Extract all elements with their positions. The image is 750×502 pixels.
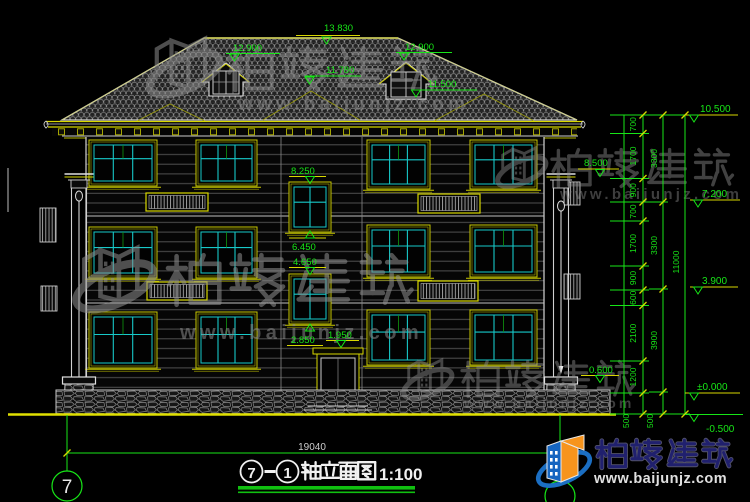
svg-text:1.950: 1.950	[328, 330, 352, 341]
svg-text:6.450: 6.450	[292, 242, 316, 253]
svg-text:0.600: 0.600	[589, 365, 613, 376]
svg-text:1:100: 1:100	[379, 465, 422, 484]
svg-text:3900: 3900	[649, 331, 659, 350]
svg-text:11.780: 11.780	[326, 65, 354, 76]
svg-text:13.830: 13.830	[324, 23, 353, 34]
svg-text:19040: 19040	[298, 442, 326, 453]
svg-text:500: 500	[621, 414, 631, 428]
svg-text:2.850: 2.850	[291, 335, 315, 346]
svg-text:www.baijunjz.com: www.baijunjz.com	[237, 94, 469, 115]
svg-text:7: 7	[247, 465, 255, 482]
svg-text:www.baijunjz.com: www.baijunjz.com	[593, 471, 727, 487]
svg-text:1700: 1700	[628, 234, 638, 253]
svg-text:11000: 11000	[671, 250, 681, 273]
svg-text:900: 900	[628, 271, 638, 285]
svg-text:7.200: 7.200	[702, 189, 727, 200]
svg-text:3300: 3300	[649, 149, 659, 168]
svg-text:±0.000: ±0.000	[697, 382, 728, 393]
svg-text:-0.500: -0.500	[706, 424, 735, 435]
svg-text:8.500: 8.500	[584, 158, 608, 169]
svg-text:1700: 1700	[628, 146, 638, 165]
svg-text:3.900: 3.900	[702, 276, 727, 287]
svg-text:500: 500	[645, 414, 655, 428]
svg-text:600: 600	[628, 290, 638, 304]
svg-text:900: 900	[628, 183, 638, 197]
svg-text:1: 1	[283, 465, 291, 482]
svg-text:11.500: 11.500	[428, 79, 456, 90]
svg-text:7: 7	[62, 477, 73, 498]
svg-text:1200: 1200	[628, 367, 638, 386]
svg-text:10.500: 10.500	[700, 104, 731, 115]
svg-text:2100: 2100	[628, 324, 638, 343]
svg-text:12.900: 12.900	[233, 43, 262, 54]
svg-text:12.900: 12.900	[405, 42, 434, 53]
svg-text:3300: 3300	[649, 236, 659, 255]
svg-text:8.250: 8.250	[291, 166, 315, 177]
svg-text:4.650: 4.650	[293, 257, 317, 268]
svg-text:www.baijunjz.com: www.baijunjz.com	[463, 395, 634, 411]
svg-text:700: 700	[628, 117, 638, 131]
svg-text:700: 700	[628, 204, 638, 218]
